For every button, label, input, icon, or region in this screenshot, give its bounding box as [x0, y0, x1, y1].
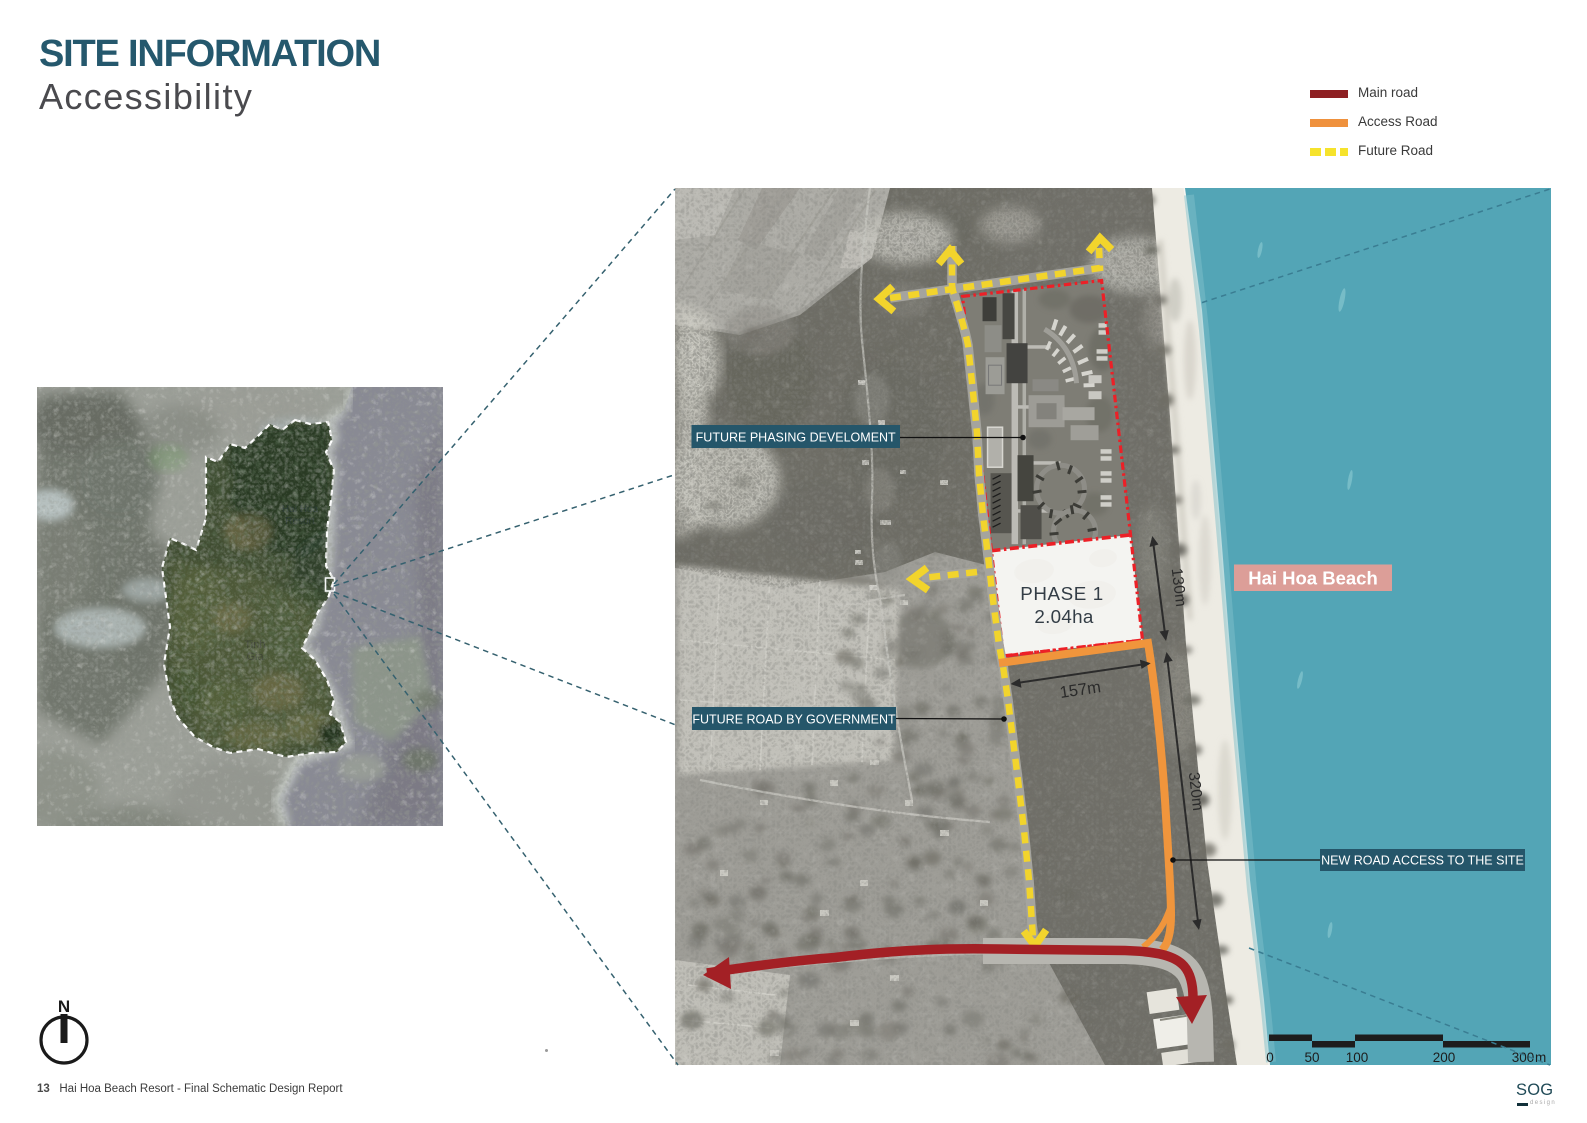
svg-text:N: N	[58, 997, 70, 1016]
